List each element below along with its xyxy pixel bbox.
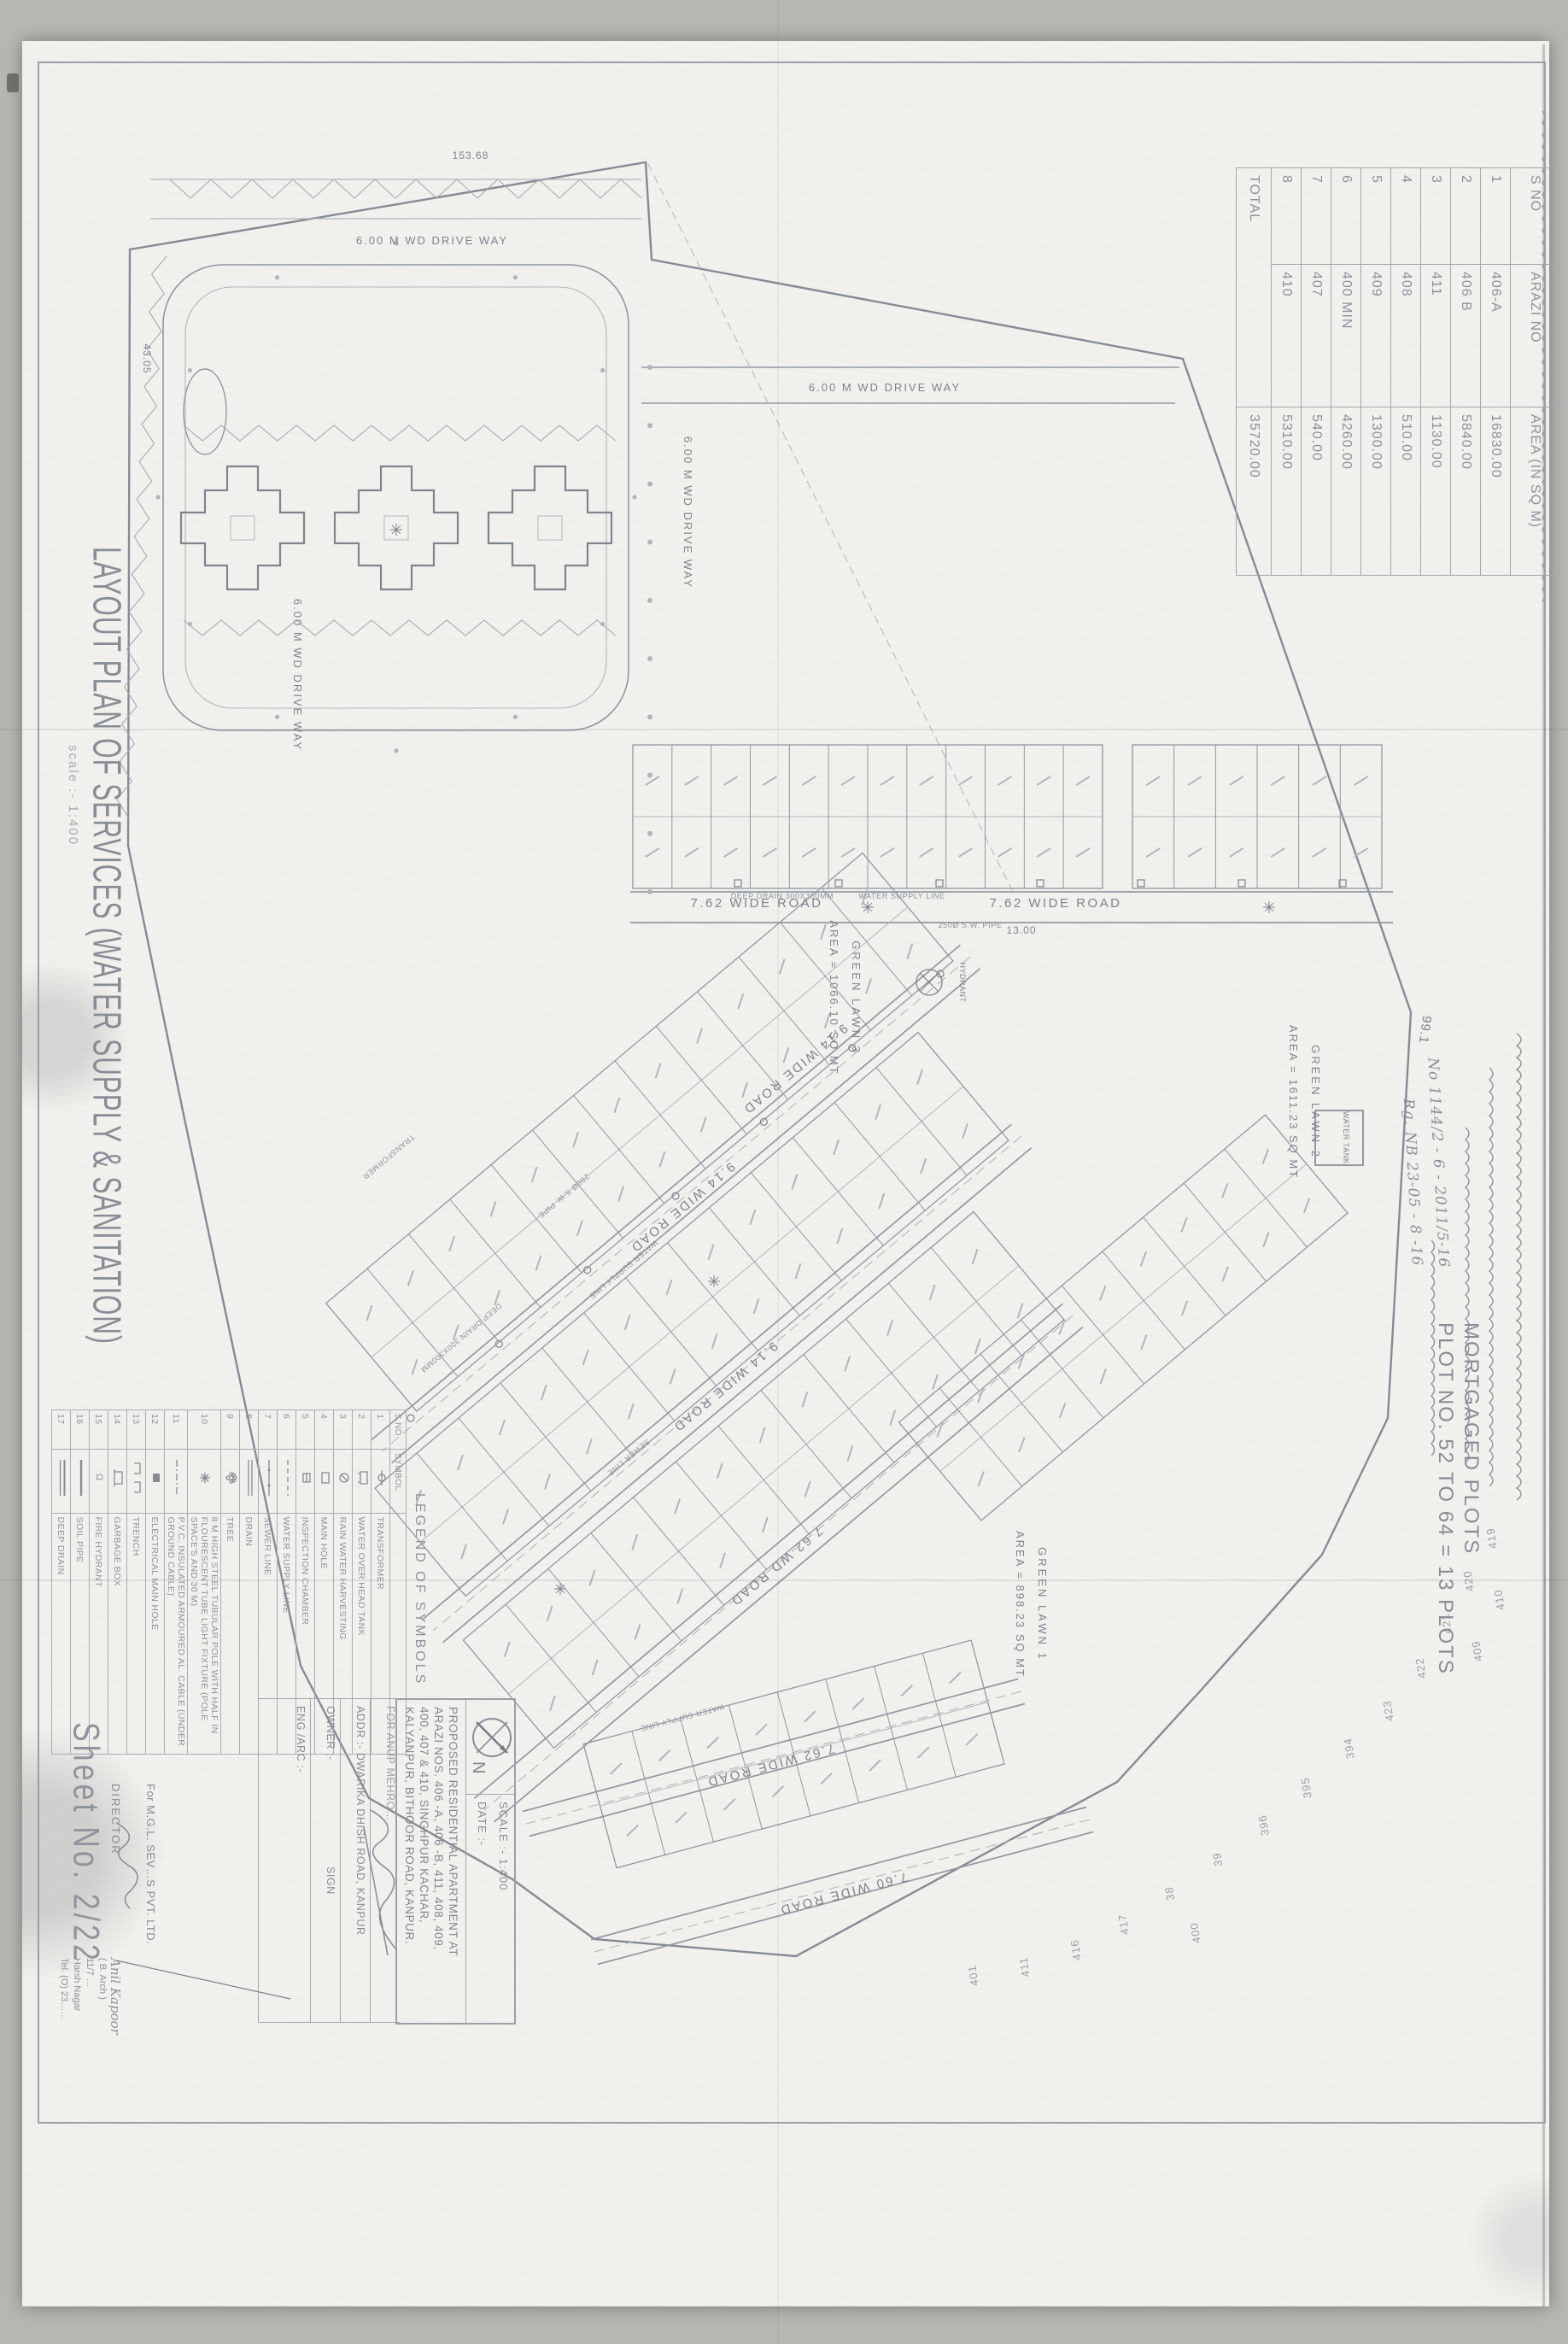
project-title-lines: PROPOSED RESIDENTIAL APARTMENT ATARAZI N… [397, 1700, 465, 2023]
area-table-cell: 16830.00 [1481, 407, 1511, 576]
legend-item-label: GARBAGE BOX [108, 1513, 127, 1754]
ic-symbol-icon [296, 1450, 315, 1513]
legend-item-label: DRAIN [240, 1513, 259, 1754]
area-table-cell: 411 [1421, 265, 1451, 407]
engineer-row: ENG /ARC :- [259, 1699, 311, 2022]
area-table-cell: 410 [1272, 265, 1302, 407]
area-table-cell: 510.00 [1391, 407, 1421, 576]
area-table-cell: 407 [1302, 265, 1331, 407]
tank-symbol-icon [353, 1450, 372, 1513]
trench-symbol-icon [127, 1450, 146, 1513]
project-title-line: PROPOSED RESIDENTIAL APARTMENT AT [446, 1707, 460, 2016]
project-title-line: KALYANPUR, BITHOOR ROAD, KANPUR. [402, 1707, 417, 2016]
mortgaged-plots-note-line1: MORTGAGED PLOTS [1459, 1322, 1483, 1555]
company-name: For M.G.L. SEV…S PVT. LTD. [144, 1784, 157, 1946]
legend-header: SYMBOL [390, 1450, 407, 1513]
legend-item-number: 15 [90, 1410, 108, 1450]
scanned-site-plan-page: WATER TANKHYDRANT7.62 WIDE ROAD7.62 WIDE… [0, 0, 1568, 2344]
legend-item-number: 16 [71, 1410, 90, 1450]
mh-symbol-icon [315, 1450, 334, 1513]
area-table-total-label: TOTAL [1237, 168, 1272, 407]
area-table-header: AREA (IN SQ M) [1511, 407, 1559, 576]
pole-symbol-icon [188, 1450, 221, 1513]
area-table-header: ARAZI NO [1511, 265, 1559, 407]
owner-note: FOR ANUP MEHRO… [371, 1699, 400, 2022]
sheet-number: Sheet No. 2/22 [64, 1722, 106, 1964]
svg-text:Ω: Ω [94, 1474, 104, 1481]
director-label: DIRECTOR [109, 1784, 122, 1946]
area-table-cell: 406 B [1451, 265, 1481, 407]
date-field: DATE :- [476, 1802, 489, 2016]
area-table-cell: 540.00 [1302, 407, 1331, 576]
area-table-cell: 5840.00 [1451, 407, 1481, 576]
legend-item-number: 5 [296, 1410, 315, 1450]
legend-item-number: 6 [278, 1410, 296, 1450]
arazi-area-table: S NOARAZI NOAREA (IN SQ M)1406-A16830.00… [1236, 167, 1559, 576]
hydrant-symbol-icon: Ω [90, 1450, 108, 1513]
legend-item-label: FIRE HYDRANT [90, 1513, 108, 1754]
tree-symbol-icon [221, 1450, 240, 1513]
fold-crease-1 [0, 729, 1568, 730]
addr-value: DWARIKA DHISH ROAD, KANPUR [354, 1753, 366, 1936]
architect-stamp-line: Tel. (O) 23…… [57, 1958, 70, 2112]
legend-item-label: TREE [221, 1513, 240, 1754]
sign-label: SIGN [325, 1866, 336, 1895]
area-table-cell: 5 [1361, 168, 1391, 265]
area-table-cell: 5310.00 [1272, 407, 1302, 576]
architect-stamp-line: Harsh Nagar [70, 1958, 83, 2112]
legend-item-number: 13 [127, 1410, 146, 1450]
area-table-cell: 8 [1272, 168, 1302, 265]
eng-label: ENG /ARC :- [295, 1706, 307, 1773]
area-table-cell: 400 MIN [1331, 265, 1361, 407]
fold-crease-2 [0, 1579, 1568, 1581]
area-table-cell: 1130.00 [1421, 407, 1451, 576]
legend-item-number: 8 [240, 1410, 259, 1450]
area-table-cell: 4 [1391, 168, 1421, 265]
area-table-cell: 4260.00 [1331, 407, 1361, 576]
legend-item-label: DEEP DRAIN [52, 1513, 71, 1754]
area-table-cell: 408 [1391, 265, 1421, 407]
drain-symbol-icon [240, 1450, 259, 1513]
legend-item-number: 7 [259, 1410, 278, 1450]
legend-item-label: TRENCH [127, 1513, 146, 1754]
area-table-total-value: 35720.00 [1237, 407, 1272, 576]
rotated-drawing-sheet: WATER TANKHYDRANT7.62 WIDE ROAD7.62 WIDE… [0, 0, 1568, 2344]
area-table-cell: 6 [1331, 168, 1361, 265]
architect-stamp: Anil Kapoor( B. Arch )11/7 …Harsh NagarT… [57, 1958, 121, 2112]
title-block: N SCALE :- 1:400 DATE :- PROPOSED RESIDE… [395, 1698, 516, 2025]
architect-stamp-line: Anil Kapoor [108, 1958, 121, 2112]
architect-stamp-line: 11/7 … [83, 1958, 96, 2112]
cable-symbol-icon [165, 1450, 188, 1513]
mortgaged-plots-note-line2: PLOT NO. 52 TO 64 = 13 PLOTS [1433, 1322, 1457, 1675]
area-table-cell: 409 [1361, 265, 1391, 407]
soil-symbol-icon [71, 1450, 90, 1513]
area-table-header: S NO [1511, 168, 1559, 265]
legend-item-label: ELECTRICAL MAIN HOLE [146, 1513, 165, 1754]
legend-item-number: 10 [188, 1410, 221, 1450]
legend-item-number: 14 [108, 1410, 127, 1450]
sline-symbol-icon [259, 1450, 278, 1513]
wline-symbol-icon [278, 1450, 296, 1513]
legend-item-number: 11 [165, 1410, 188, 1450]
area-table-cell: 406-A [1481, 265, 1511, 407]
legend-item-label: P.V.C. INSULATED ARMOURED AL. CABLE (UND… [165, 1513, 188, 1754]
company-signature-block: For M.G.L. SEV…S PVT. LTD. DIRECTOR [109, 1784, 157, 1946]
deep-symbol-icon [52, 1450, 71, 1513]
transformer-symbol-icon [372, 1450, 390, 1513]
legend-header: S.NO [390, 1410, 407, 1450]
legend-item-number: 9 [221, 1410, 240, 1450]
legend-item-number: 17 [52, 1410, 71, 1450]
legend-item-number: 2 [353, 1410, 372, 1450]
legend-item-number: 3 [334, 1410, 353, 1450]
legend-item-number: 4 [315, 1410, 334, 1450]
legend-item-label: SOIL PIPE [71, 1513, 90, 1754]
addr-label: ADDR :- [354, 1706, 366, 1749]
scale-field: SCALE :- 1:400 [497, 1802, 510, 2016]
area-table-cell: 1 [1481, 168, 1511, 265]
architect-stamp-line: ( B. Arch ) [96, 1958, 108, 2112]
area-table-cell: 7 [1302, 168, 1331, 265]
legend-item-number: 1 [372, 1410, 390, 1450]
addr-row: ADDR :- DWARIKA DHISH ROAD, KANPUR [341, 1699, 371, 2022]
north-arrow: N [466, 1700, 514, 1795]
drawing-scale-note: scale :- 1:400 [66, 745, 80, 846]
legend-item-number: 12 [146, 1410, 165, 1450]
garbage-symbol-icon [108, 1450, 127, 1513]
owner-label: OWNER :- [325, 1706, 336, 1761]
project-title-line: 400, 407 & 410, SINGHPUR KACHAR, [417, 1707, 431, 2016]
title-block-rows: FOR ANUP MEHRO… ADDR :- DWARIKA DHISH RO… [258, 1698, 400, 2023]
north-label: N [469, 1761, 488, 1773]
fold-crease-3 [777, 0, 779, 2344]
drawing-title: LAYOUT PLAN OF SERVICES (WATER SUPPLY & … [83, 547, 128, 1401]
emh-symbol-icon [146, 1450, 165, 1513]
legend-item-label: 8 M HIGH STEEL TUBULAR POLE WITH HALF IN… [188, 1513, 221, 1754]
area-table-cell: 1300.00 [1361, 407, 1391, 576]
area-table-cell: 3 [1421, 168, 1451, 265]
rain-symbol-icon [334, 1450, 353, 1513]
project-title-line: ARAZI NOS. 406 -A, 406 -B, 411, 408, 409… [431, 1707, 446, 2016]
area-table-cell: 2 [1451, 168, 1481, 265]
owner-row: OWNER :- SIGN [311, 1699, 341, 2022]
